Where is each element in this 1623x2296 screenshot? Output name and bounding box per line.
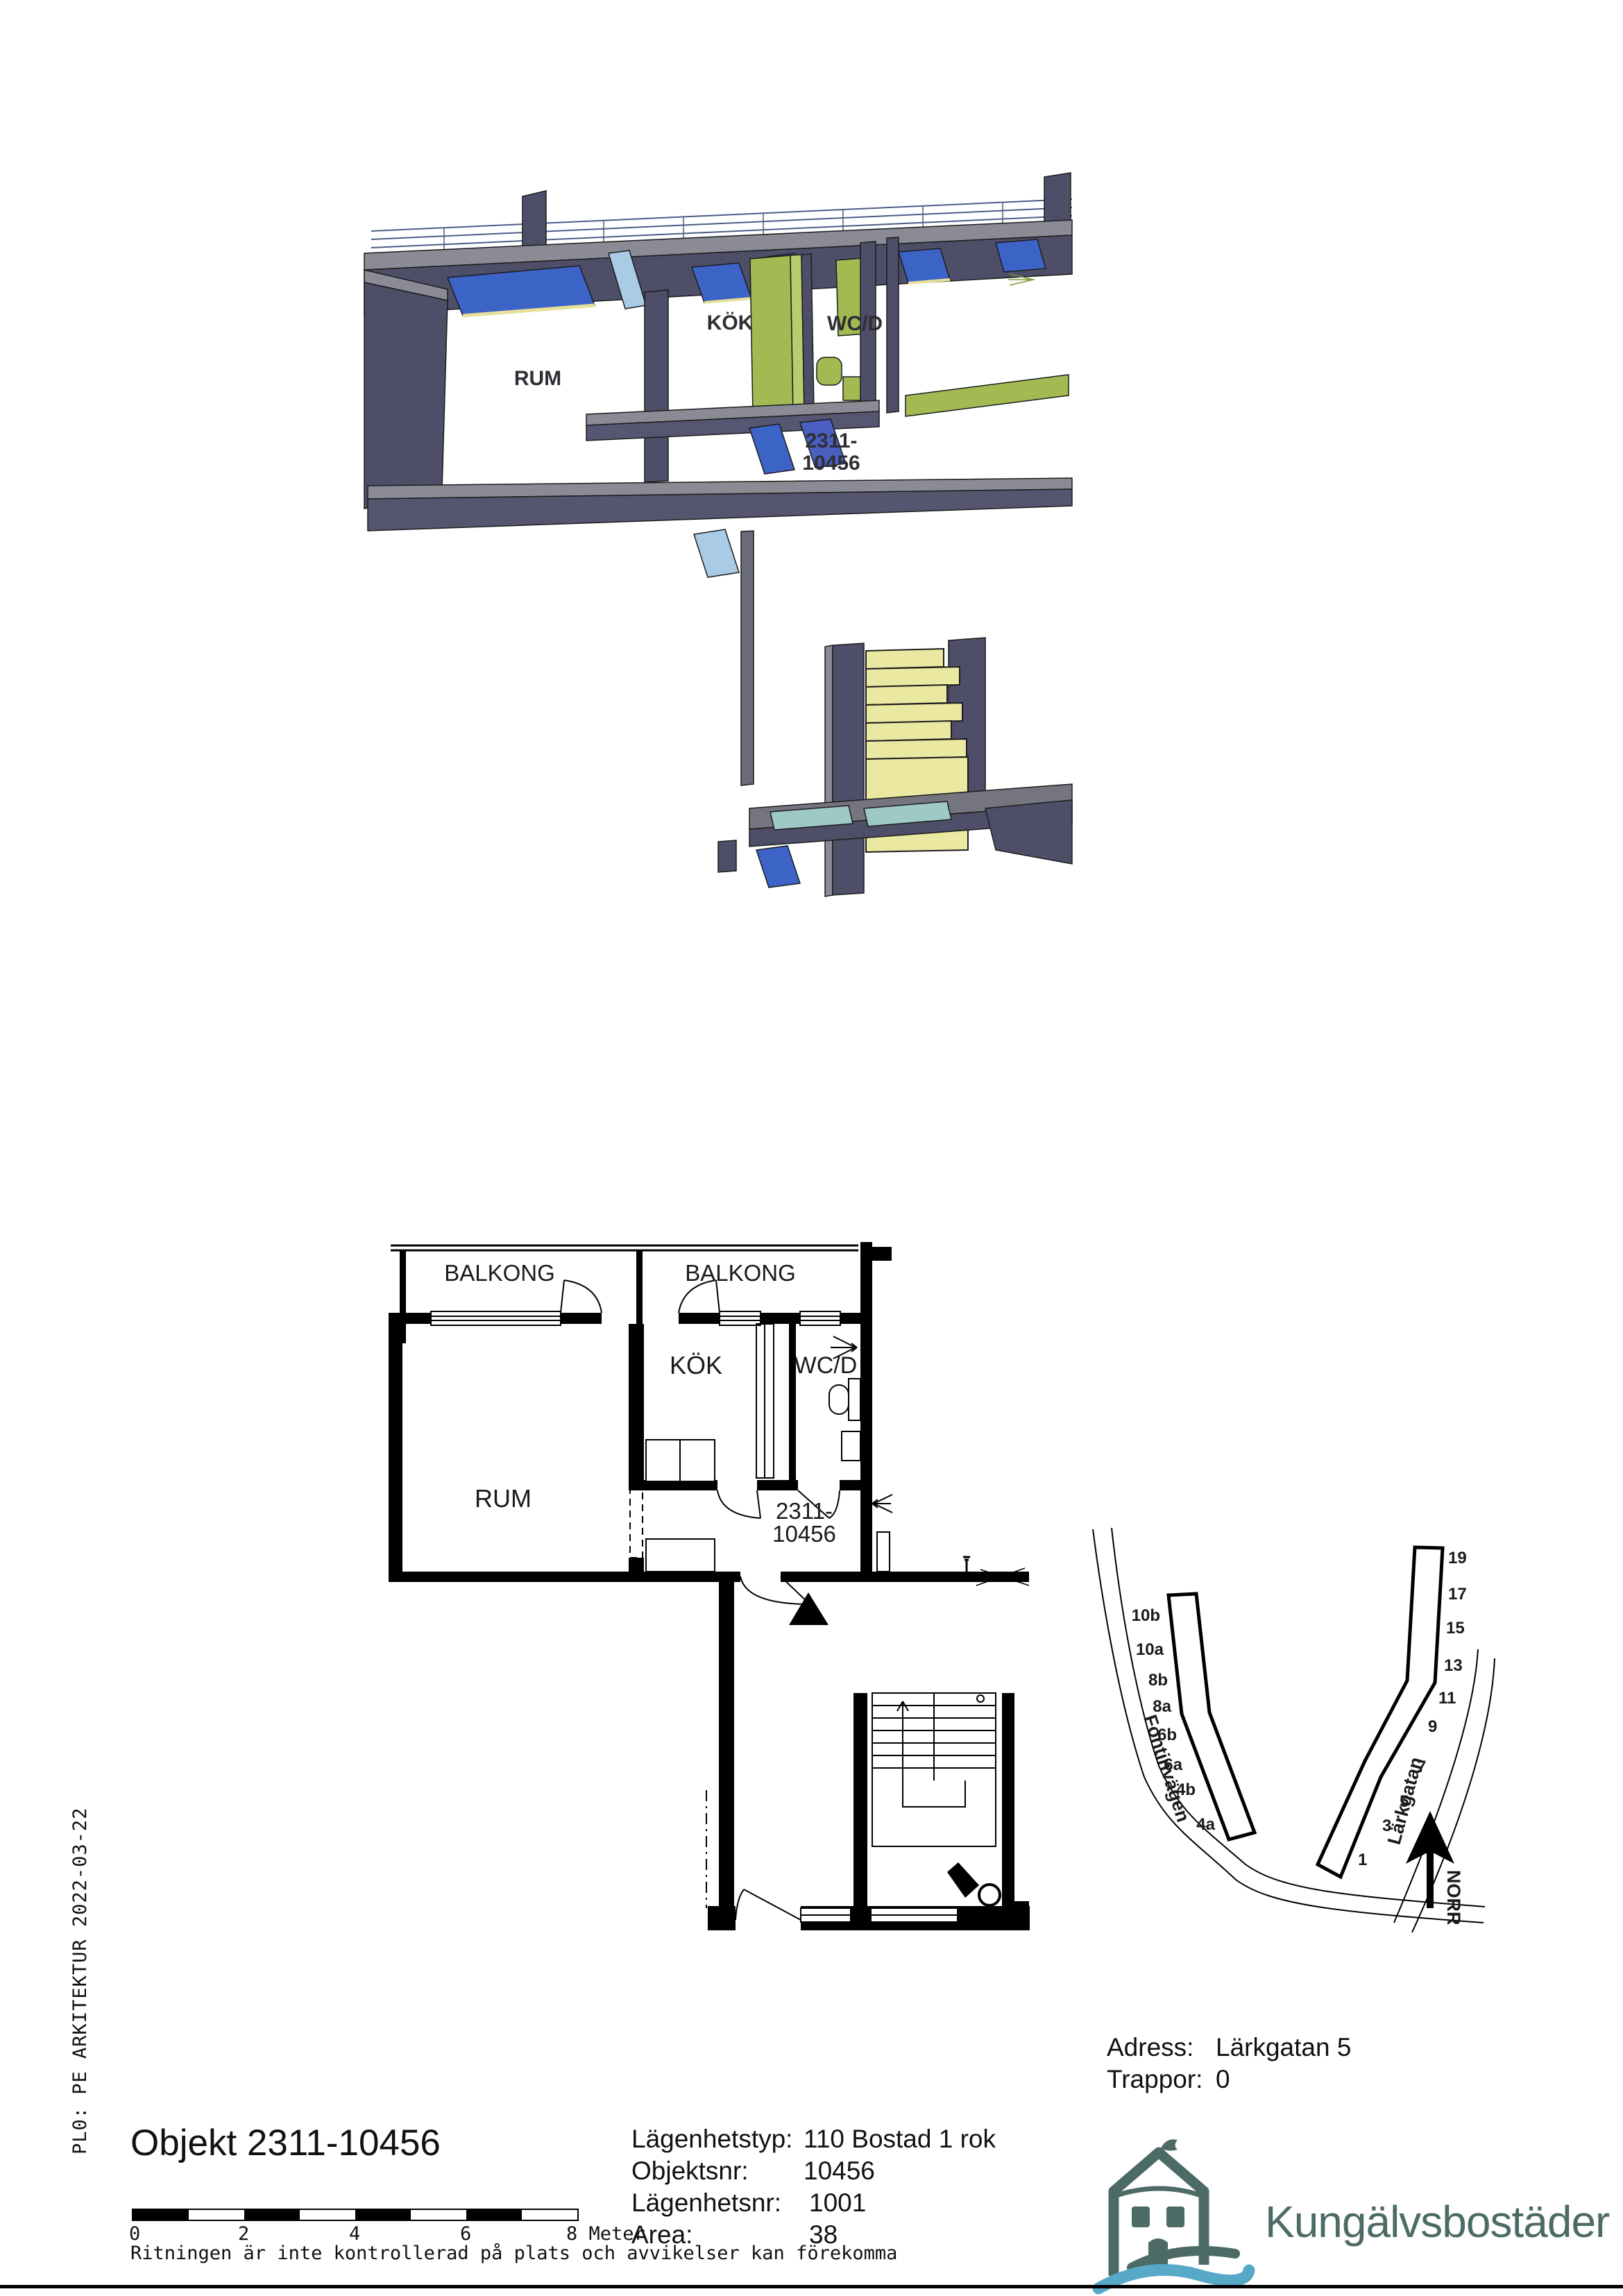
svg-text:5: 5	[1400, 1792, 1409, 1811]
balcony-label: BALKONG	[444, 1260, 555, 1286]
logo-tower-icon	[1098, 2139, 1249, 2288]
interior-wall	[887, 237, 899, 413]
trappor-value: 0	[1216, 2065, 1230, 2093]
scale-bar	[132, 2209, 579, 2221]
kitchen-counter	[646, 1440, 715, 1572]
svg-text:4b: 4b	[1176, 1780, 1196, 1799]
column	[979, 1885, 1000, 1905]
scale-tick: 4	[349, 2223, 360, 2245]
footer-rule	[0, 2285, 1623, 2288]
trappor-label: Trappor:	[1107, 2064, 1216, 2095]
table-row: Area:38	[631, 2219, 1020, 2251]
interior-wall	[801, 254, 814, 411]
plan-sheet: RUM KÖK WC/D 2311- 10456	[0, 0, 1623, 2296]
wall-front-face	[364, 282, 448, 509]
lobby-wall	[719, 1582, 734, 1930]
svg-text:10a: 10a	[1136, 1640, 1164, 1659]
table-row: Objektsnr:10456	[631, 2155, 1020, 2187]
door	[717, 1490, 760, 1518]
interior-wall	[645, 290, 668, 482]
svg-text:8b: 8b	[1148, 1671, 1168, 1690]
corridor-wall	[389, 1572, 1029, 1582]
tap-symbol	[963, 1557, 970, 1572]
washbasin-3d	[817, 357, 842, 385]
sliding-door	[630, 1481, 643, 1558]
view-3d: RUM KÖK WC/D 2311- 10456	[350, 156, 1072, 975]
open-door-pane	[756, 846, 800, 887]
open-door-pane	[694, 529, 739, 577]
svg-text:4a: 4a	[1196, 1815, 1215, 1834]
svg-text:1: 1	[1358, 1851, 1367, 1869]
table-row: Lägenhetsnr:1001	[631, 2187, 1020, 2219]
interior-wall	[629, 1558, 644, 1574]
address-block: Adress:Lärkgatan 5 Trappor:0	[1107, 2032, 1468, 2095]
svg-text:19: 19	[1448, 1549, 1467, 1567]
svg-text:17: 17	[1448, 1585, 1467, 1604]
window-3d	[899, 248, 950, 283]
svg-text:10b: 10b	[1132, 1606, 1160, 1625]
object-title: Objekt 2311-10456	[130, 2122, 441, 2164]
balcony-edge	[391, 1245, 858, 1250]
logo-text: Kungälvsbostäder	[1265, 2197, 1610, 2247]
scale-tick: 6	[460, 2223, 471, 2245]
plot-stamp: PL0: PE ARKITEKTUR 2022-03-22	[69, 1856, 100, 2154]
svg-text:11: 11	[1438, 1689, 1456, 1708]
wall	[718, 840, 736, 872]
wall	[741, 531, 754, 785]
window	[801, 1908, 958, 1922]
stair-wall	[825, 645, 833, 896]
company-logo: Kungälvsbostäder	[1093, 2132, 1592, 2295]
window-3d	[996, 239, 1046, 272]
bird-icon	[1161, 2139, 1178, 2150]
svg-text:9: 9	[1428, 1717, 1437, 1736]
stair-wall	[1002, 1693, 1014, 1906]
unit-number-3d: 2311-	[805, 430, 857, 452]
table-row: Lägenhetstyp:110 Bostad 1 rok	[631, 2123, 1020, 2155]
scale-tick: 2	[238, 2223, 249, 2245]
svg-text:13: 13	[1444, 1656, 1463, 1675]
site-map: Fontinvägen Lärkgatan NORR 10b 10a 8b 8a…	[1062, 1499, 1527, 2012]
interior-wall	[629, 1324, 644, 1481]
wave-dark	[1132, 2251, 1235, 2268]
room-label-wcd: WC/D	[794, 1352, 858, 1379]
north-label: NORR	[1443, 1870, 1464, 1925]
details-table: Lägenhetstyp:110 Bostad 1 rok Objektsnr:…	[631, 2123, 1020, 2251]
tall-cabinet	[756, 1324, 774, 1478]
room-label-wcd-3d: WC/D	[827, 312, 883, 335]
unit-number-3d: 10456	[802, 452, 860, 475]
vent-symbol	[872, 1495, 892, 1513]
room-label-rum: RUM	[475, 1484, 532, 1513]
wall	[985, 800, 1072, 864]
room-label-kok-3d: KÖK	[707, 312, 754, 334]
floor-plan-2d: BALKONG BALKONG RUM KÖK WC/D 2311- 10456	[378, 1207, 1037, 1943]
balcony-label: BALKONG	[685, 1260, 796, 1286]
unit-number: 2311-	[776, 1498, 833, 1524]
cabinet-3d	[906, 375, 1069, 416]
interior-wall	[789, 1324, 796, 1480]
address-value: Lärkgatan 5	[1216, 2033, 1351, 2061]
svg-text:15: 15	[1446, 1619, 1465, 1638]
address-label: Adress:	[1107, 2032, 1216, 2064]
stair-wall	[853, 1693, 867, 1930]
svg-text:6b: 6b	[1157, 1726, 1177, 1744]
shaft	[877, 1532, 890, 1572]
room-label-kok: KÖK	[670, 1351, 722, 1379]
stairs	[872, 1693, 996, 1846]
svg-text:3: 3	[1382, 1817, 1391, 1835]
room-label-rum-3d: RUM	[514, 367, 561, 390]
svg-text:8a: 8a	[1153, 1697, 1171, 1716]
cabinet-3d	[750, 255, 793, 416]
svg-text:7: 7	[1417, 1758, 1426, 1776]
unit-number: 10456	[772, 1521, 836, 1547]
stair-wall	[833, 643, 864, 895]
entrance-triangle	[789, 1592, 829, 1625]
washbasin	[842, 1431, 860, 1461]
lobby-door	[736, 1889, 801, 1920]
svg-text:6a: 6a	[1164, 1755, 1182, 1774]
scale-tick: 0	[129, 2223, 140, 2245]
toilet	[829, 1379, 860, 1420]
